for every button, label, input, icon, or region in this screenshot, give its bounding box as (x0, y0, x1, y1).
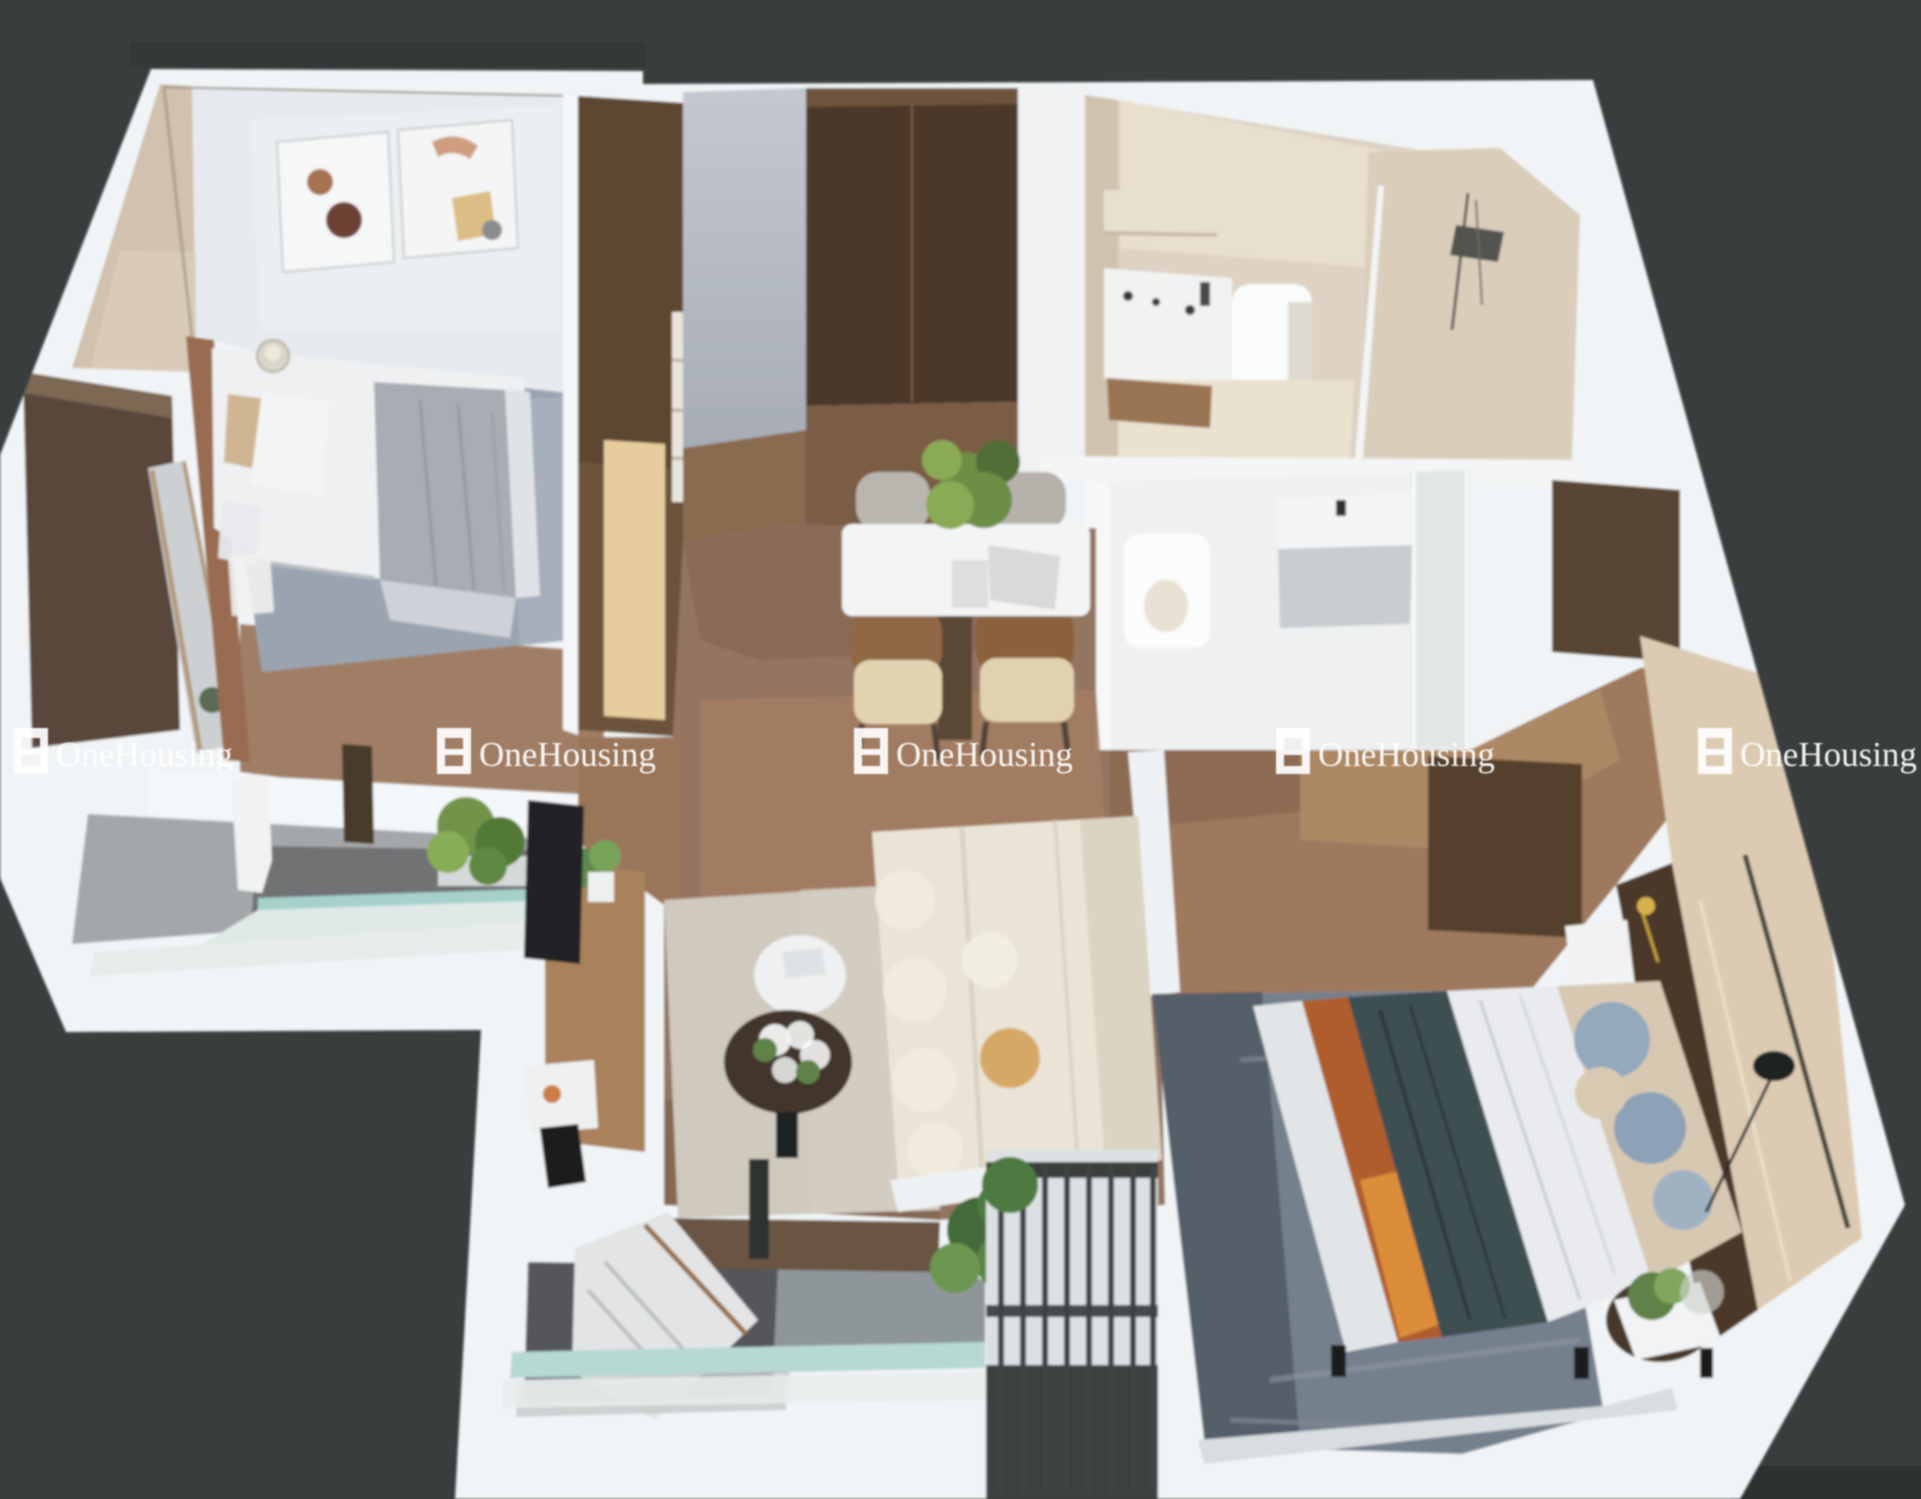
svg-text:OneHousing: OneHousing (479, 735, 656, 774)
svg-text:OneHousing: OneHousing (56, 735, 233, 774)
svg-text:OneHousing: OneHousing (1318, 735, 1495, 774)
svg-text:OneHousing: OneHousing (896, 735, 1073, 774)
svg-text:OneHousing: OneHousing (1740, 735, 1917, 774)
